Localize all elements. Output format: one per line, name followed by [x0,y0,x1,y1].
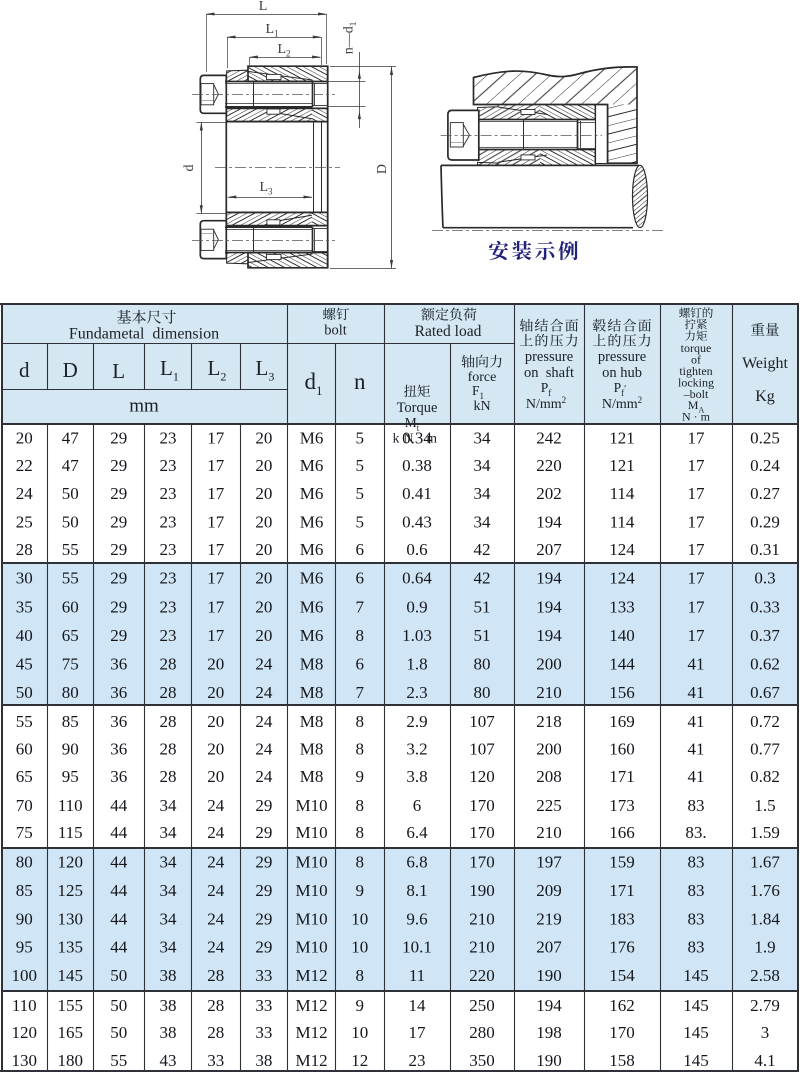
svg-text:6.4: 6.4 [406,823,428,842]
svg-text:M6: M6 [300,569,324,588]
svg-text:83: 83 [688,909,705,928]
svg-text:20: 20 [207,767,224,786]
svg-text:190: 190 [469,881,495,900]
svg-text:194: 194 [536,626,562,645]
svg-text:90: 90 [16,909,33,928]
svg-text:Fundametal dimension: Fundametal dimension [69,326,219,343]
svg-text:17: 17 [207,626,225,645]
svg-text:0.37: 0.37 [750,626,780,645]
svg-text:n: n [354,369,366,394]
svg-text:34: 34 [160,823,178,842]
svg-text:M8: M8 [300,767,324,786]
svg-text:9.6: 9.6 [406,909,427,928]
svg-text:33: 33 [207,1051,224,1070]
svg-text:33: 33 [255,996,272,1015]
svg-text:0.82: 0.82 [750,767,780,786]
svg-text:N/mm2: N/mm2 [602,395,642,412]
svg-text:17: 17 [688,512,706,531]
svg-text:45: 45 [16,655,33,674]
svg-text:3.8: 3.8 [406,767,427,786]
svg-text:17: 17 [207,456,225,475]
svg-text:220: 220 [536,456,562,475]
svg-text:3: 3 [761,1023,770,1042]
svg-text:M8: M8 [300,655,324,674]
svg-text:17: 17 [688,626,706,645]
svg-text:38: 38 [255,1051,272,1070]
svg-text:17: 17 [688,569,706,588]
svg-text:170: 170 [609,1023,635,1042]
svg-text:8: 8 [356,966,365,985]
svg-text:23: 23 [160,512,177,531]
svg-text:2.58: 2.58 [750,966,780,985]
svg-text:20: 20 [255,569,272,588]
svg-text:0.67: 0.67 [750,683,780,702]
svg-text:6: 6 [356,540,365,559]
svg-text:28: 28 [160,683,177,702]
svg-text:50: 50 [110,1023,127,1042]
svg-text:145: 145 [683,966,709,985]
svg-text:0.38: 0.38 [402,456,432,475]
svg-text:114: 114 [610,512,635,531]
svg-text:350: 350 [469,1051,495,1070]
svg-text:20: 20 [207,683,224,702]
svg-text:100: 100 [12,966,38,985]
svg-text:51: 51 [474,626,491,645]
svg-text:0.43: 0.43 [402,512,432,531]
svg-text:N · m: N · m [682,410,711,424]
svg-text:1.84: 1.84 [750,909,780,928]
svg-text:L1: L1 [265,22,278,39]
svg-text:145: 145 [58,966,84,985]
svg-text:34: 34 [474,512,492,531]
svg-text:44: 44 [110,938,128,957]
svg-text:110: 110 [12,996,37,1015]
svg-text:95: 95 [16,938,33,957]
svg-text:4.1: 4.1 [754,1051,775,1070]
svg-text:M12: M12 [296,1051,328,1070]
svg-text:55: 55 [110,1051,127,1070]
svg-text:20: 20 [255,456,272,475]
svg-text:M8: M8 [300,712,324,731]
svg-text:55: 55 [62,569,79,588]
svg-text:17: 17 [207,429,225,448]
svg-text:34: 34 [160,909,178,928]
svg-text:M10: M10 [296,853,328,872]
svg-text:202: 202 [536,484,562,503]
svg-text:14: 14 [409,996,427,1015]
svg-text:36: 36 [110,683,127,702]
svg-text:133: 133 [609,597,635,616]
svg-text:44: 44 [110,823,128,842]
svg-text:8: 8 [356,796,365,815]
svg-text:198: 198 [536,1023,562,1042]
svg-text:Torque: Torque [397,400,438,416]
svg-text:pressure: pressure [598,349,646,365]
svg-text:22: 22 [16,456,33,475]
svg-text:80: 80 [16,853,33,872]
svg-text:29: 29 [110,597,127,616]
svg-text:1.59: 1.59 [750,823,780,842]
svg-text:20: 20 [255,512,272,531]
svg-text:80: 80 [474,655,491,674]
svg-text:2.79: 2.79 [750,996,780,1015]
svg-text:11: 11 [409,966,425,985]
svg-text:20: 20 [207,712,224,731]
svg-text:29: 29 [110,569,127,588]
svg-text:M6: M6 [300,429,324,448]
svg-text:M10: M10 [296,796,328,815]
svg-text:2.9: 2.9 [406,712,427,731]
svg-text:2.3: 2.3 [406,683,427,702]
svg-text:D: D [63,358,78,382]
svg-text:0.31: 0.31 [750,540,780,559]
svg-text:M6: M6 [300,597,324,616]
svg-text:55: 55 [62,540,79,559]
svg-text:L3: L3 [259,180,273,197]
svg-text:24: 24 [255,739,273,758]
svg-text:34: 34 [160,796,178,815]
svg-text:M6: M6 [300,512,324,531]
svg-text:17: 17 [207,540,225,559]
svg-text:200: 200 [536,739,562,758]
svg-text:0.62: 0.62 [750,655,780,674]
svg-text:160: 160 [609,739,635,758]
svg-text:6.8: 6.8 [406,853,427,872]
svg-text:0.9: 0.9 [406,597,427,616]
svg-text:M12: M12 [296,1023,328,1042]
svg-text:20: 20 [255,429,272,448]
svg-text:41: 41 [688,712,705,731]
svg-text:41: 41 [688,739,705,758]
svg-text:0.72: 0.72 [750,712,780,731]
svg-text:50: 50 [16,683,33,702]
svg-text:83.: 83. [685,823,706,842]
svg-text:d: d [182,165,197,172]
svg-text:17: 17 [688,456,706,475]
svg-text:17: 17 [207,569,225,588]
svg-text:80: 80 [62,683,79,702]
svg-text:85: 85 [16,881,33,900]
svg-text:50: 50 [110,996,127,1015]
svg-text:24: 24 [207,853,225,872]
svg-text:20: 20 [255,597,272,616]
svg-text:17: 17 [409,1023,427,1042]
svg-text:23: 23 [160,569,177,588]
svg-text:125: 125 [58,881,84,900]
svg-text:8: 8 [356,712,365,731]
svg-text:55: 55 [16,712,33,731]
svg-text:bolt: bolt [324,323,347,339]
svg-text:on shaft: on shaft [524,365,574,381]
svg-text:24: 24 [207,938,225,957]
svg-text:28: 28 [160,655,177,674]
svg-text:47: 47 [62,429,80,448]
svg-text:28: 28 [207,966,224,985]
svg-text:42: 42 [474,569,491,588]
svg-text:28: 28 [207,1023,224,1042]
svg-text:Kg: Kg [755,388,775,405]
svg-text:n—d1: n—d1 [342,22,359,55]
svg-text:159: 159 [609,853,635,872]
svg-text:L2: L2 [277,42,290,59]
svg-text:28: 28 [160,712,177,731]
svg-text:36: 36 [110,655,127,674]
svg-text:208: 208 [536,767,562,786]
svg-text:44: 44 [110,853,128,872]
svg-text:5: 5 [356,456,365,475]
svg-text:0.29: 0.29 [750,512,780,531]
svg-text:194: 194 [536,996,562,1015]
svg-text:1.03: 1.03 [402,626,432,645]
svg-text:120: 120 [58,853,84,872]
svg-text:17: 17 [207,597,225,616]
svg-text:0.33: 0.33 [750,597,780,616]
svg-text:51: 51 [474,597,491,616]
svg-text:165: 165 [58,1023,84,1042]
svg-text:23: 23 [160,540,177,559]
svg-text:83: 83 [688,881,705,900]
svg-text:D: D [375,164,390,174]
svg-text:29: 29 [255,853,272,872]
svg-text:mm: mm [129,396,159,417]
svg-text:145: 145 [683,1051,709,1070]
svg-text:34: 34 [474,429,492,448]
svg-text:24: 24 [255,683,273,702]
svg-text:9: 9 [356,767,365,786]
svg-text:170: 170 [469,823,495,842]
svg-text:24: 24 [255,655,273,674]
svg-text:29: 29 [110,456,127,475]
svg-text:41: 41 [688,655,705,674]
svg-text:83: 83 [688,796,705,815]
svg-text:10.1: 10.1 [402,938,432,957]
svg-text:65: 65 [62,626,79,645]
svg-text:190: 190 [536,966,562,985]
svg-text:44: 44 [110,909,128,928]
svg-text:166: 166 [609,823,635,842]
svg-text:140: 140 [609,626,635,645]
svg-text:242: 242 [536,429,562,448]
svg-text:95: 95 [62,767,79,786]
svg-text:145: 145 [683,996,709,1015]
svg-text:M6: M6 [300,626,324,645]
svg-text:60: 60 [62,597,79,616]
svg-text:0.64: 0.64 [402,569,432,588]
svg-text:130: 130 [58,909,84,928]
svg-text:1.76: 1.76 [750,881,780,900]
svg-text:219: 219 [536,909,562,928]
svg-text:M6: M6 [300,484,324,503]
svg-text:6: 6 [413,796,422,815]
svg-text:8: 8 [356,739,365,758]
svg-text:Rated load: Rated load [415,323,482,340]
svg-text:50: 50 [110,966,127,985]
svg-text:29: 29 [255,938,272,957]
svg-text:36: 36 [110,739,127,758]
svg-text:25: 25 [16,512,33,531]
svg-text:0.24: 0.24 [750,456,780,475]
svg-text:M6: M6 [300,540,324,559]
svg-text:41: 41 [688,683,705,702]
svg-text:29: 29 [110,512,127,531]
svg-text:10: 10 [351,938,368,957]
svg-text:0.27: 0.27 [750,484,780,503]
svg-text:40: 40 [16,626,33,645]
svg-text:0.34: 0.34 [402,429,432,448]
svg-text:135: 135 [58,938,84,957]
svg-text:190: 190 [536,1051,562,1070]
svg-text:42: 42 [474,540,491,559]
svg-text:114: 114 [610,484,635,503]
svg-text:M10: M10 [296,909,328,928]
svg-text:171: 171 [609,881,635,900]
svg-text:10: 10 [351,1023,368,1042]
svg-text:34: 34 [160,853,178,872]
svg-text:210: 210 [469,938,495,957]
svg-text:17: 17 [688,484,706,503]
svg-text:9: 9 [356,881,365,900]
svg-text:6: 6 [356,655,365,674]
svg-text:180: 180 [58,1051,84,1070]
svg-text:20: 20 [207,739,224,758]
svg-text:70: 70 [16,796,33,815]
svg-text:29: 29 [110,540,127,559]
svg-text:17: 17 [688,429,706,448]
svg-text:225: 225 [536,796,562,815]
svg-text:121: 121 [609,429,635,448]
svg-text:210: 210 [536,683,562,702]
svg-text:23: 23 [160,484,177,503]
svg-text:124: 124 [609,540,635,559]
svg-text:Weight: Weight [742,355,788,372]
svg-text:34: 34 [160,938,178,957]
svg-text:12: 12 [351,1051,368,1070]
svg-text:44: 44 [110,881,128,900]
svg-text:36: 36 [110,767,127,786]
svg-text:210: 210 [469,909,495,928]
svg-text:173: 173 [609,796,635,815]
svg-text:24: 24 [16,484,34,503]
svg-text:7: 7 [356,597,365,616]
svg-text:23: 23 [160,429,177,448]
svg-text:107: 107 [469,712,495,731]
svg-text:124: 124 [609,569,635,588]
svg-text:20: 20 [255,540,272,559]
svg-text:34: 34 [474,484,492,503]
svg-text:7: 7 [356,683,365,702]
svg-text:38: 38 [160,996,177,1015]
svg-text:17: 17 [688,597,706,616]
svg-text:29: 29 [255,823,272,842]
svg-text:M6: M6 [300,456,324,475]
svg-text:kN: kN [473,399,490,414]
svg-text:80: 80 [474,683,491,702]
svg-text:115: 115 [58,823,83,842]
svg-text:145: 145 [683,1023,709,1042]
svg-text:24: 24 [255,712,273,731]
svg-text:85: 85 [62,712,79,731]
svg-text:24: 24 [207,796,225,815]
svg-text:M10: M10 [296,881,328,900]
svg-text:200: 200 [536,655,562,674]
svg-text:1.9: 1.9 [754,938,775,957]
svg-text:M10: M10 [296,823,328,842]
svg-text:194: 194 [536,512,562,531]
svg-text:23: 23 [160,597,177,616]
svg-text:121: 121 [609,456,635,475]
svg-text:83: 83 [688,853,705,872]
svg-text:3.2: 3.2 [406,739,427,758]
svg-text:0.6: 0.6 [406,540,427,559]
svg-text:169: 169 [609,712,635,731]
svg-text:23: 23 [409,1051,426,1070]
svg-text:d: d [19,358,30,382]
svg-text:28: 28 [160,767,177,786]
svg-text:N/mm2: N/mm2 [526,395,566,412]
svg-text:29: 29 [255,909,272,928]
svg-text:158: 158 [609,1051,635,1070]
svg-text:90: 90 [62,739,79,758]
svg-text:75: 75 [16,823,33,842]
svg-text:20: 20 [255,626,272,645]
svg-text:170: 170 [469,796,495,815]
svg-text:24: 24 [207,909,225,928]
svg-text:250: 250 [469,996,495,1015]
svg-text:34: 34 [474,456,492,475]
svg-text:280: 280 [469,1023,495,1042]
svg-text:1.5: 1.5 [754,796,775,815]
svg-text:120: 120 [12,1023,38,1042]
svg-text:83: 83 [688,938,705,957]
svg-text:60: 60 [16,739,33,758]
svg-text:29: 29 [255,881,272,900]
svg-text:220: 220 [469,966,495,985]
svg-text:5: 5 [356,484,365,503]
svg-text:17: 17 [207,484,225,503]
svg-text:6: 6 [356,569,365,588]
svg-text:34: 34 [160,881,178,900]
svg-text:30: 30 [16,569,33,588]
svg-text:197: 197 [536,853,562,872]
svg-text:8.1: 8.1 [406,881,427,900]
svg-text:pressure: pressure [525,349,573,365]
svg-text:29: 29 [110,484,127,503]
svg-text:162: 162 [609,996,635,1015]
svg-text:209: 209 [536,881,562,900]
svg-text:8: 8 [356,823,365,842]
svg-text:M8: M8 [300,683,324,702]
svg-text:8: 8 [356,626,365,645]
svg-text:M10: M10 [296,938,328,957]
svg-text:50: 50 [62,484,79,503]
svg-text:0.77: 0.77 [750,739,780,758]
svg-text:41: 41 [688,767,705,786]
svg-text:L: L [112,359,125,383]
svg-text:L: L [259,0,268,14]
svg-text:154: 154 [609,966,635,985]
svg-text:38: 38 [160,1023,177,1042]
svg-text:20: 20 [255,484,272,503]
svg-text:on hub: on hub [602,365,642,381]
svg-text:24: 24 [255,767,273,786]
svg-text:75: 75 [62,655,79,674]
svg-text:144: 144 [609,655,635,674]
svg-text:1.8: 1.8 [406,655,427,674]
svg-text:194: 194 [536,597,562,616]
svg-text:20: 20 [16,429,33,448]
svg-text:183: 183 [609,909,635,928]
svg-text:0.3: 0.3 [754,569,775,588]
